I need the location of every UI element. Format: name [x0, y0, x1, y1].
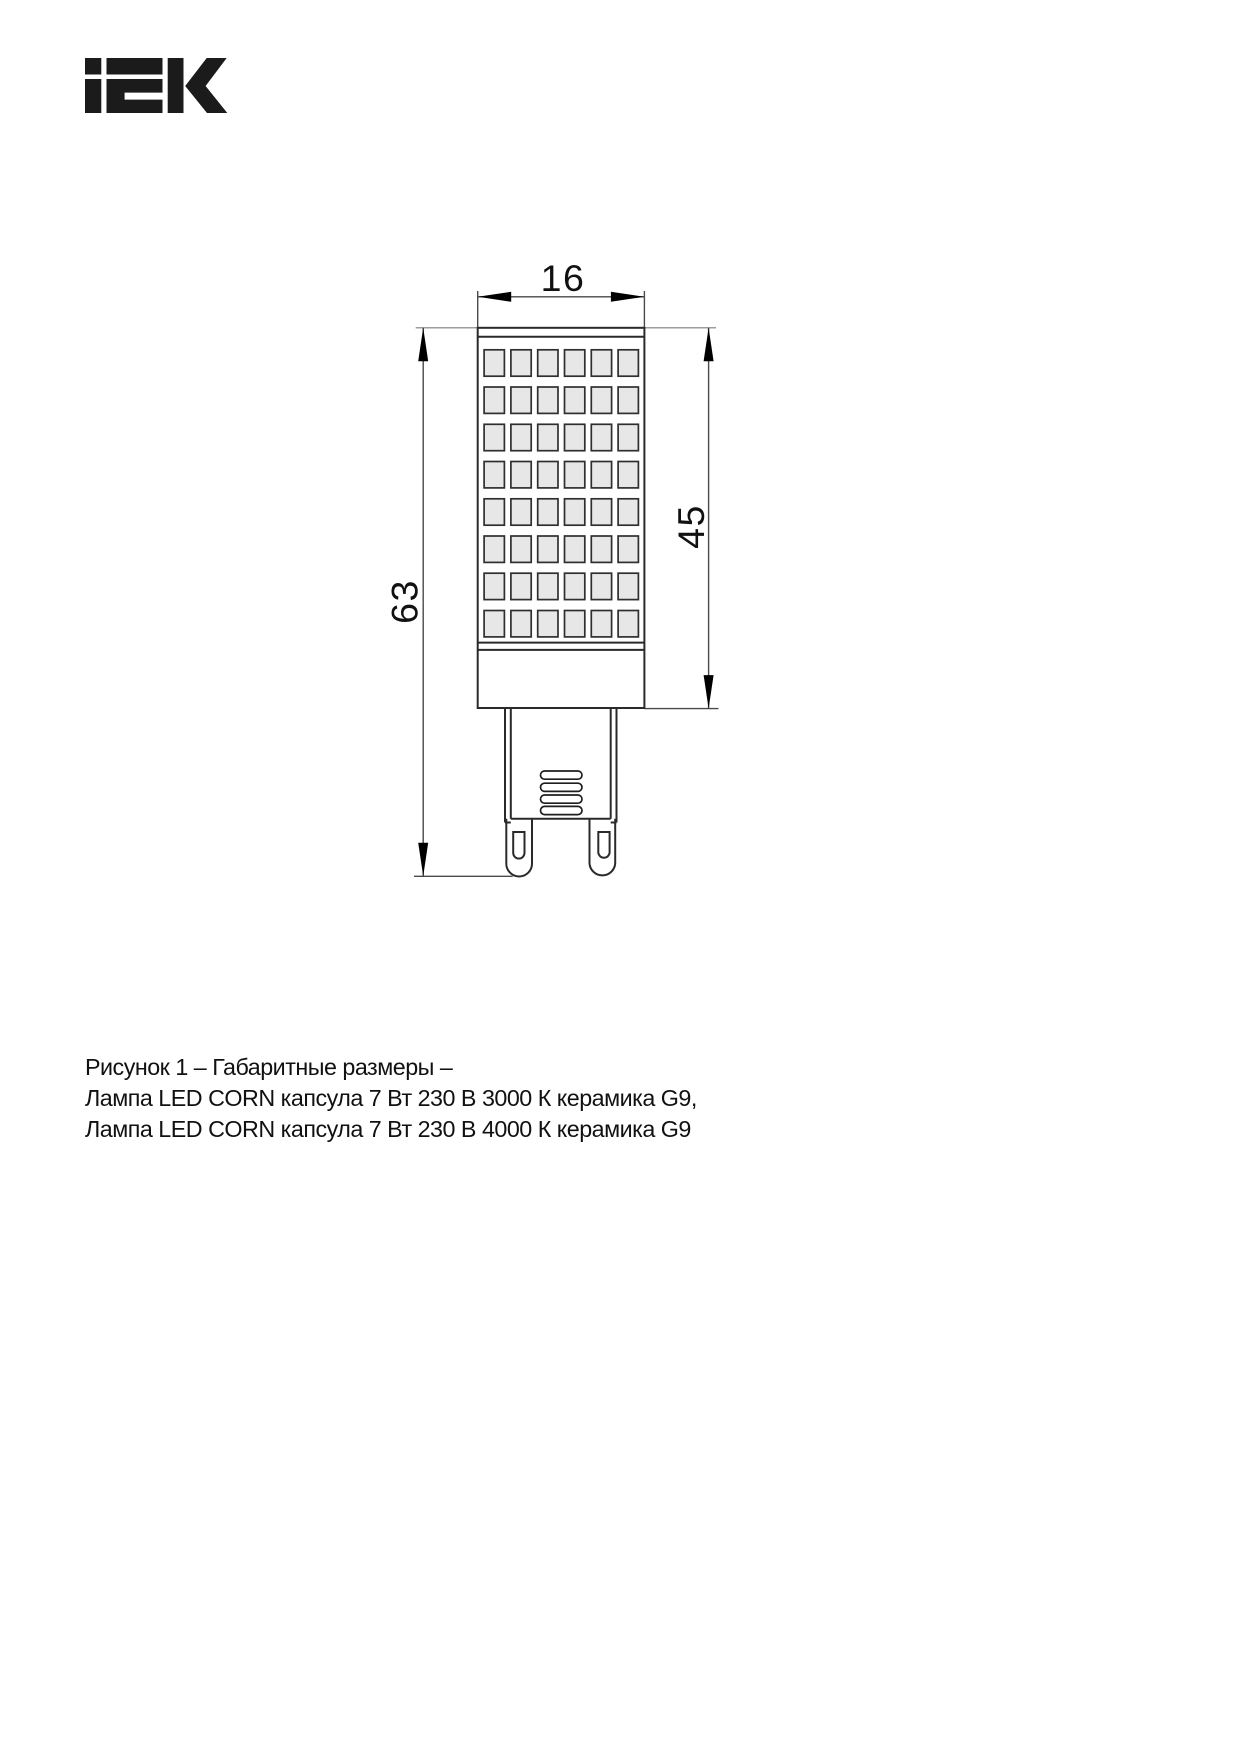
svg-text:Рисунок 1 – Габаритные размеры: Рисунок 1 – Габаритные размеры – — [85, 1054, 453, 1080]
svg-text:Лампа LED CORN капсула 7 Вт 23: Лампа LED CORN капсула 7 Вт 230 В 4000 К… — [85, 1116, 691, 1142]
svg-text:63: 63 — [384, 579, 426, 624]
svg-text:16: 16 — [541, 257, 586, 299]
svg-text:Лампа LED CORN капсула 7 Вт 23: Лампа LED CORN капсула 7 Вт 230 В 3000 К… — [85, 1085, 697, 1111]
svg-text:45: 45 — [670, 504, 712, 549]
